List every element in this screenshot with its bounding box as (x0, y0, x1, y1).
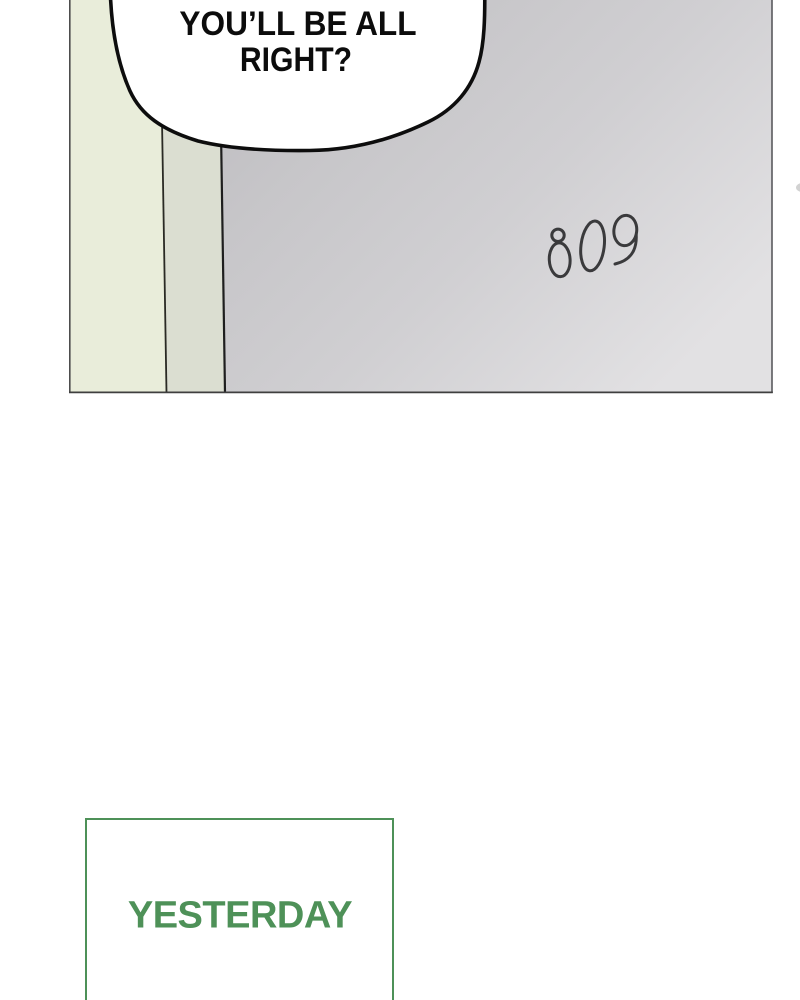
svg-text:YOU’LL BE ALL: YOU’LL BE ALL (179, 4, 416, 42)
svg-text:YESTERDAY: YESTERDAY (128, 895, 352, 937)
svg-text:RIGHT?: RIGHT? (240, 40, 352, 78)
